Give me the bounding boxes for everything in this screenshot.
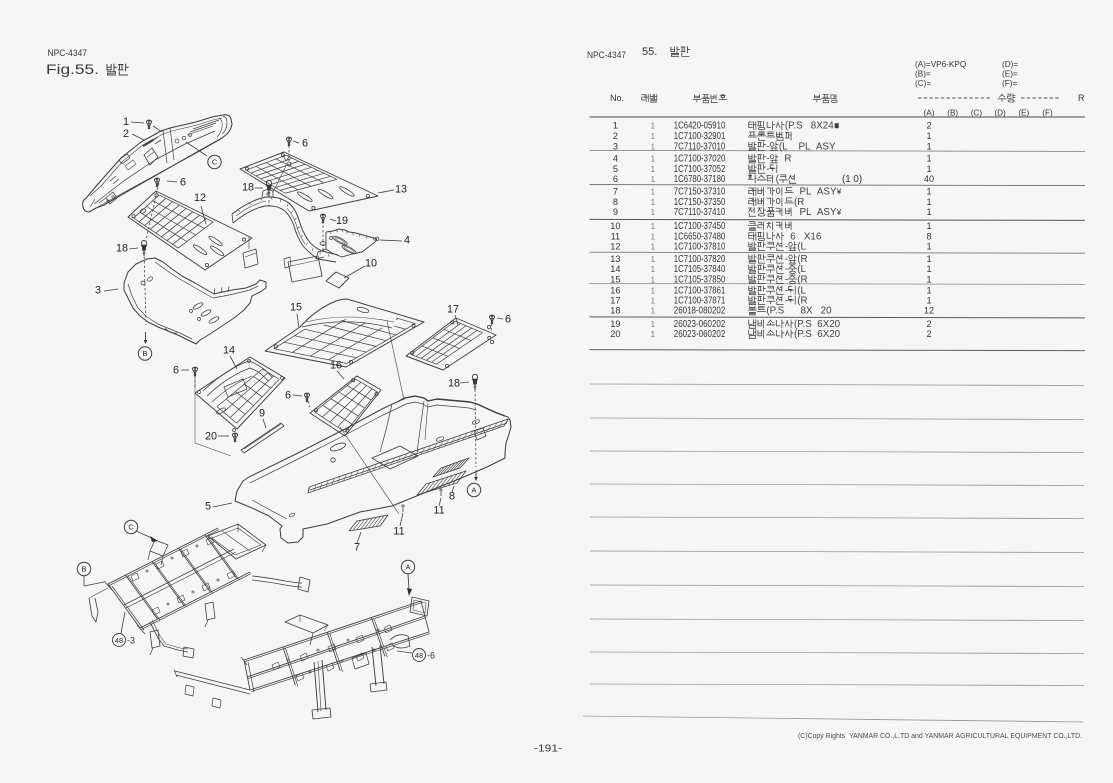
svg-text:1C6420-05910: 1C6420-05910 — [674, 121, 726, 132]
svg-text:(B): (B) — [947, 109, 958, 118]
svg-text:1: 1 — [651, 330, 656, 339]
svg-text:1C7105-37850: 1C7105-37850 — [674, 274, 726, 285]
svg-text:40: 40 — [924, 174, 934, 184]
svg-text:6: 6 — [285, 390, 291, 402]
svg-text:10: 10 — [365, 258, 377, 270]
svg-text:15: 15 — [290, 302, 302, 314]
svg-text:6: 6 — [505, 314, 511, 326]
svg-text:13: 13 — [610, 254, 620, 264]
svg-text:1: 1 — [926, 131, 931, 141]
svg-text:17: 17 — [610, 295, 620, 305]
svg-text:19: 19 — [610, 319, 620, 329]
svg-text:55.: 55. — [642, 46, 657, 58]
svg-text:2: 2 — [123, 128, 129, 140]
svg-text:12: 12 — [194, 192, 206, 204]
svg-text:10: 10 — [610, 221, 620, 231]
svg-text:7C7110-37010: 7C7110-37010 — [674, 141, 726, 152]
svg-text:8: 8 — [613, 197, 618, 207]
svg-text:-: - — [785, 274, 788, 285]
svg-text:(E): (E) — [1018, 109, 1029, 118]
svg-text:-: - — [785, 241, 788, 252]
svg-text:¥: ¥ — [836, 207, 842, 217]
svg-text:20: 20 — [205, 431, 217, 443]
svg-text:1: 1 — [926, 141, 931, 151]
svg-text:12: 12 — [610, 241, 620, 251]
svg-text:(P.S 8X24: (P.S 8X24 — [785, 121, 834, 132]
svg-text:12: 12 — [924, 306, 934, 316]
svg-text:1C6780-37180: 1C6780-37180 — [674, 174, 726, 185]
svg-text:NPC-4347: NPC-4347 — [48, 48, 88, 58]
svg-text:11: 11 — [611, 232, 621, 242]
svg-text:1: 1 — [651, 296, 656, 305]
svg-text:18: 18 — [448, 378, 460, 390]
svg-text:1: 1 — [651, 255, 656, 264]
svg-text:¥: ¥ — [836, 187, 842, 197]
svg-text:1: 1 — [651, 222, 656, 231]
svg-text:R: R — [779, 154, 792, 165]
svg-text:2: 2 — [926, 329, 931, 339]
svg-text:14: 14 — [223, 345, 235, 357]
svg-text:6: 6 — [180, 177, 186, 189]
svg-text:9: 9 — [613, 207, 618, 217]
svg-text:(F): (F) — [1042, 109, 1053, 118]
svg-text:2: 2 — [613, 131, 618, 141]
svg-text:1: 1 — [926, 187, 931, 197]
svg-text:8: 8 — [926, 232, 931, 242]
svg-text:1: 1 — [651, 307, 656, 316]
svg-text:3: 3 — [95, 285, 101, 297]
svg-text:1: 1 — [651, 198, 656, 207]
svg-text:1: 1 — [613, 121, 618, 131]
svg-text:19: 19 — [336, 215, 348, 227]
svg-text:1: 1 — [651, 208, 656, 217]
svg-text:1: 1 — [651, 188, 656, 197]
svg-text:R: R — [1078, 93, 1085, 103]
svg-text:8: 8 — [449, 491, 455, 503]
svg-text:1: 1 — [651, 175, 656, 184]
svg-text:11: 11 — [433, 505, 444, 517]
svg-text:16: 16 — [610, 285, 620, 295]
svg-text:1: 1 — [926, 254, 931, 264]
svg-text:(P.S 8X 20: (P.S 8X 20 — [766, 306, 832, 317]
svg-text:(R: (R — [797, 274, 807, 285]
svg-text:26023-060202: 26023-060202 — [674, 329, 726, 340]
svg-text:14: 14 — [610, 264, 620, 274]
svg-text:-191-: -191- — [534, 744, 562, 755]
svg-text:(A)=VP6-KPQ: (A)=VP6-KPQ — [915, 60, 966, 69]
svg-text:18: 18 — [242, 182, 254, 194]
svg-text:(L PL ASY: (L PL ASY — [779, 141, 836, 152]
svg-text:1: 1 — [651, 233, 656, 242]
svg-text:1: 1 — [651, 155, 656, 164]
svg-text:1: 1 — [926, 207, 931, 217]
svg-text:26018-080202: 26018-080202 — [674, 306, 726, 317]
svg-text:5: 5 — [205, 501, 211, 513]
svg-text:(A): (A) — [924, 109, 935, 118]
svg-text:17: 17 — [447, 304, 459, 316]
svg-text:13: 13 — [395, 184, 407, 196]
svg-text:2: 2 — [926, 319, 931, 329]
svg-text:1: 1 — [651, 286, 656, 295]
svg-text:1: 1 — [651, 165, 656, 174]
svg-text:4: 4 — [404, 235, 410, 247]
svg-text:1: 1 — [651, 242, 656, 251]
svg-text:PL ASY: PL ASY — [794, 207, 837, 218]
svg-text:15: 15 — [610, 274, 620, 284]
svg-text:9: 9 — [259, 408, 265, 420]
svg-text:7: 7 — [613, 187, 618, 197]
svg-text:1: 1 — [926, 197, 931, 207]
svg-text:20: 20 — [610, 329, 620, 339]
svg-text:1: 1 — [123, 116, 129, 128]
svg-text:5: 5 — [613, 164, 618, 174]
svg-text:-: - — [766, 164, 769, 175]
svg-text:1C7100-37810: 1C7100-37810 — [674, 241, 726, 252]
svg-text:3: 3 — [613, 141, 618, 151]
svg-text:18: 18 — [610, 306, 620, 316]
svg-text:(C)Copy Rights YANMAR CO.,L.T: (C)Copy Rights YANMAR CO.,L.TD and YANMA… — [798, 731, 1082, 740]
svg-text:B: B — [82, 565, 87, 574]
svg-text:C: C — [128, 523, 134, 532]
svg-text:-6: -6 — [427, 651, 435, 661]
svg-text:1: 1 — [926, 285, 931, 295]
svg-text:B: B — [143, 349, 148, 358]
svg-text:4: 4 — [613, 154, 618, 164]
svg-text:-3: -3 — [127, 636, 135, 646]
svg-text:6: 6 — [613, 174, 618, 184]
svg-text:48: 48 — [415, 651, 423, 660]
svg-text:1: 1 — [926, 154, 931, 164]
svg-text:(C): (C) — [971, 109, 983, 118]
svg-text:2: 2 — [926, 121, 931, 131]
svg-text:-: - — [766, 141, 769, 152]
svg-text:7: 7 — [354, 542, 360, 554]
svg-text:(C)=: (C)= — [915, 79, 931, 88]
svg-text:1: 1 — [926, 295, 931, 305]
svg-text:(B)=: (B)= — [915, 70, 931, 79]
svg-text:1: 1 — [651, 320, 656, 329]
svg-text:1: 1 — [926, 221, 931, 231]
svg-text:6: 6 — [173, 365, 179, 377]
svg-text:16: 16 — [330, 360, 342, 372]
svg-text:C: C — [212, 158, 218, 167]
svg-text:1: 1 — [651, 122, 656, 131]
svg-text:NPC-4347: NPC-4347 — [587, 50, 626, 60]
svg-text:48: 48 — [115, 636, 123, 645]
svg-text:(P.S 6X20: (P.S 6X20 — [794, 329, 841, 340]
svg-text:(F)=: (F)= — [1002, 79, 1017, 88]
svg-text:1: 1 — [926, 264, 931, 274]
svg-text:1: 1 — [651, 132, 656, 141]
svg-text:(E)=: (E)= — [1002, 70, 1018, 79]
svg-text:1: 1 — [651, 265, 656, 274]
svg-text:18: 18 — [116, 243, 128, 255]
svg-text:(1 0): (1 0) — [842, 174, 862, 185]
svg-text:6: 6 — [302, 138, 308, 150]
svg-text:(D): (D) — [994, 109, 1006, 118]
svg-text:11: 11 — [393, 526, 404, 538]
svg-text:A: A — [406, 563, 411, 572]
svg-text:1: 1 — [651, 275, 656, 284]
svg-text:1: 1 — [926, 164, 931, 174]
svg-text:7C7110-37410: 7C7110-37410 — [674, 207, 726, 218]
svg-text:A: A — [472, 486, 477, 495]
svg-text:(D)=: (D)= — [1002, 60, 1018, 69]
svg-text:1: 1 — [926, 274, 931, 284]
svg-text:1: 1 — [926, 241, 931, 251]
svg-text:No.: No. — [610, 93, 624, 103]
svg-text:Fig.55.: Fig.55. — [46, 62, 99, 77]
svg-text:1: 1 — [651, 142, 656, 151]
svg-text:(L: (L — [797, 241, 806, 252]
svg-text:1C7100-37450: 1C7100-37450 — [674, 221, 726, 232]
